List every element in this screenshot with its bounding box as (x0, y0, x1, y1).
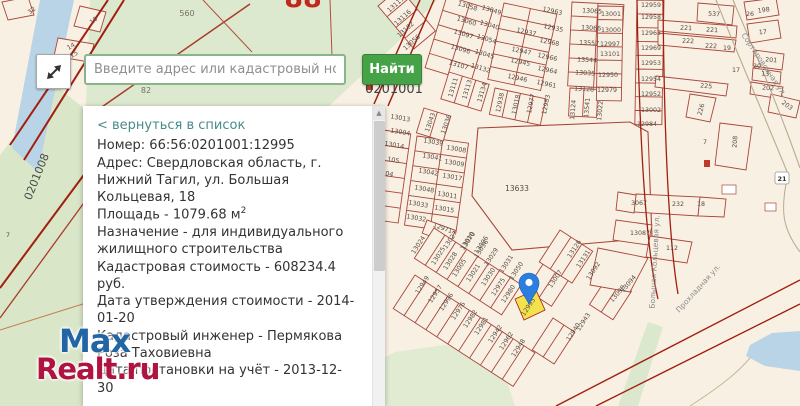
road-sign-21 (775, 172, 789, 184)
parcel-purpose: Назначение - для индивидуального жилищно… (97, 224, 357, 259)
cadastral-map-page: 02010010201008560828813633Сортировочная … (0, 0, 800, 406)
cadastral-cost: Кадастровая стоимость - 608234.4 руб. (97, 259, 357, 294)
back-to-list-link[interactable]: < вернуться в список (97, 117, 357, 134)
parcel-number: Номер: 66:56:0201001:12995 (97, 137, 357, 154)
parcel-area: Площадь - 1079.68 м2 (97, 206, 357, 224)
scrollbar-thumb[interactable] (374, 121, 385, 271)
search-button[interactable]: Найти (362, 54, 422, 85)
parcel-info-content: < вернуться в список Номер: 66:56:020100… (83, 106, 385, 406)
fullscreen-button[interactable] (36, 54, 71, 89)
poi-icon (704, 160, 710, 167)
parcel-address: Адрес: Свердловская область, г. Нижний Т… (97, 155, 357, 207)
panel-scrollbar[interactable]: ▲ (372, 106, 385, 406)
cost-approval-date: Дата утверждения стоимости - 2014-01-20 (97, 293, 357, 328)
search-input[interactable] (84, 54, 346, 85)
expand-arrows-icon (44, 62, 64, 82)
registration-date: Дата постановки на учёт - 2013-12-30 (97, 362, 357, 397)
parcel-info-panel: < вернуться в список Номер: 66:56:020100… (83, 106, 385, 406)
scrollbar-up-arrow[interactable]: ▲ (373, 106, 385, 120)
cadastral-engineer: Кадастровый инженер - Пермякова Роза Тах… (97, 328, 357, 363)
